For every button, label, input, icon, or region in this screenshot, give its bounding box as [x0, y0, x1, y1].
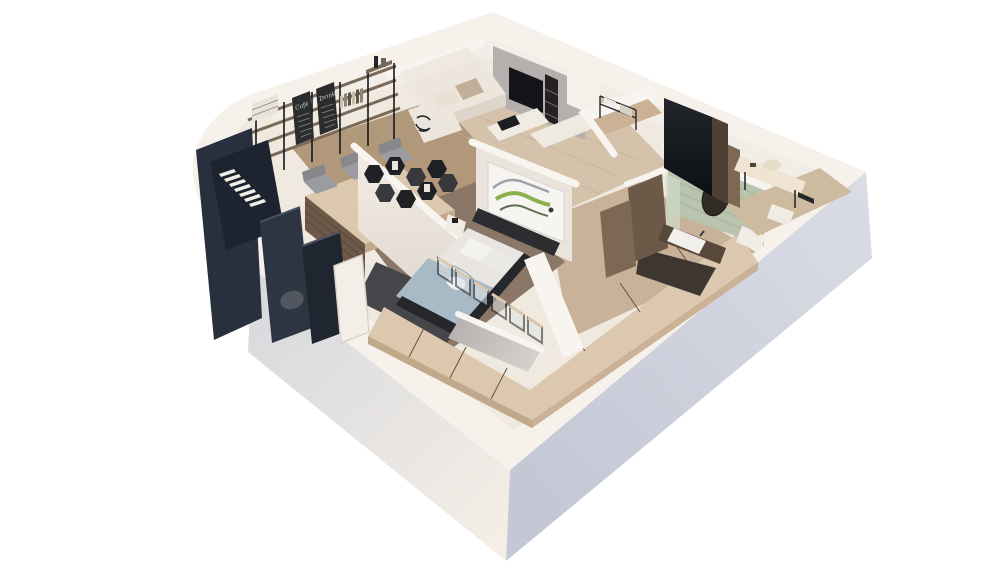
walnut-sliver: [712, 117, 728, 204]
walnut-door-panel: [600, 200, 636, 278]
light-vase: [381, 58, 386, 67]
dark-bottle: [374, 56, 378, 68]
floorplan-canvas: Café Drinks: [0, 0, 1000, 563]
apartment-3d-floorplan: Café Drinks: [0, 0, 1000, 563]
hat-box: [763, 160, 781, 171]
nightstand-item: [452, 218, 458, 223]
hex-shelf-book: [392, 161, 398, 170]
shower-glass: [666, 174, 680, 232]
drinks-menu-board: Drinks: [316, 82, 340, 135]
hex-shelf-book: [424, 184, 430, 192]
entry-door: [334, 255, 369, 343]
artwork-accent: [549, 208, 554, 213]
counter-item: [750, 163, 756, 167]
